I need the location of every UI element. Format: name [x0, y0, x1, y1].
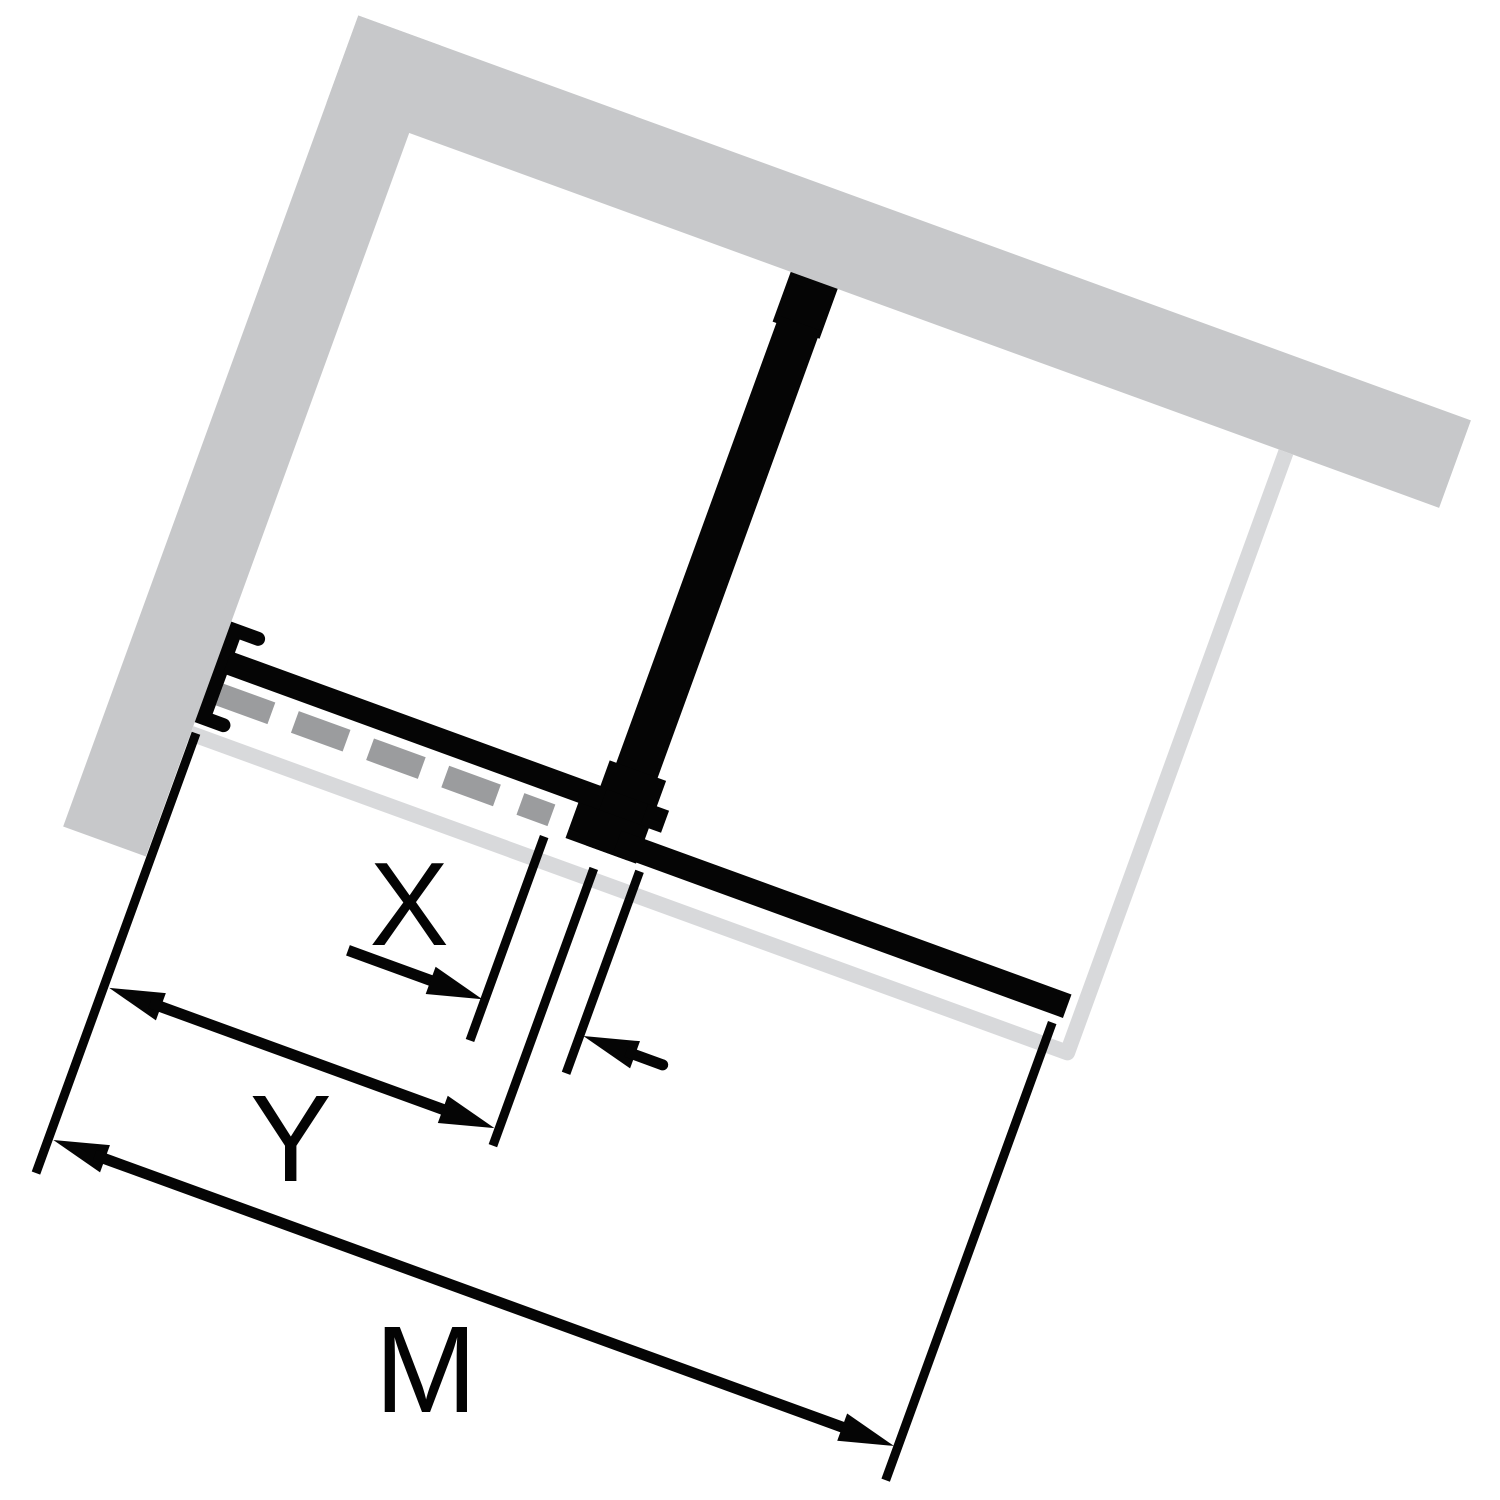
svg-text:Y: Y: [250, 1071, 332, 1208]
svg-text:M: M: [375, 1302, 477, 1439]
svg-text:X: X: [370, 838, 449, 971]
